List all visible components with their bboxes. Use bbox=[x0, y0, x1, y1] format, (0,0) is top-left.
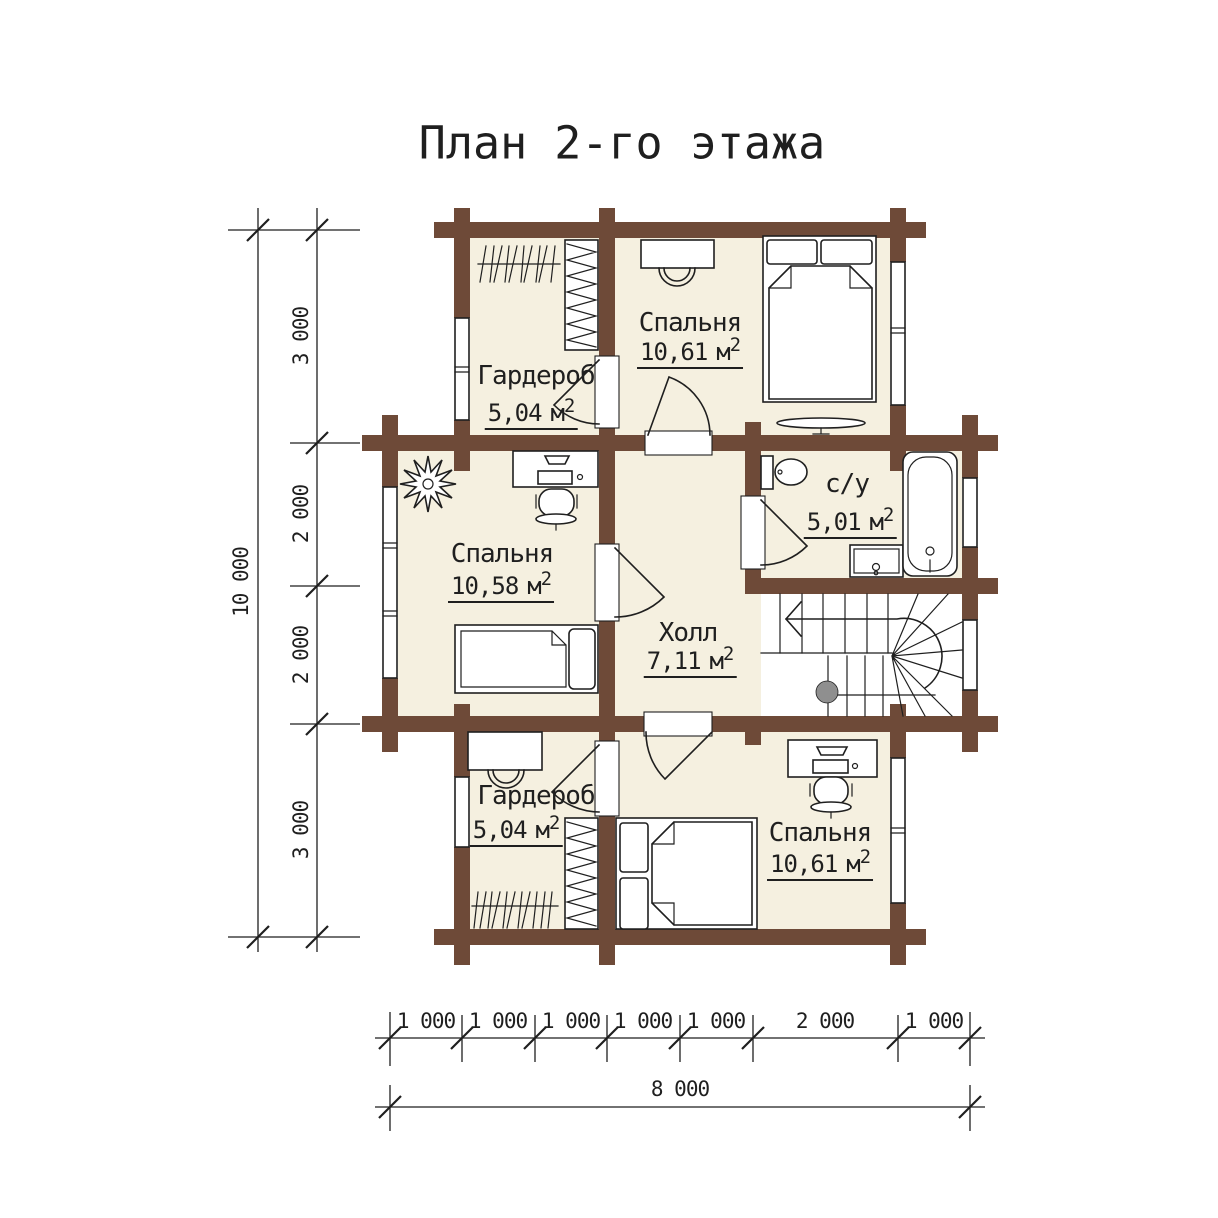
door-jamb bbox=[595, 741, 619, 816]
room-label-wardrobe-top: Гардероб bbox=[477, 361, 594, 391]
door-jamb bbox=[595, 356, 619, 428]
dim-h-segment-4: 1 000 bbox=[614, 1009, 672, 1033]
dim-v-total: 10 000 bbox=[229, 547, 253, 617]
desk-icon bbox=[788, 740, 877, 777]
sink-icon bbox=[850, 545, 903, 577]
dim-v-segment-4: 3 000 bbox=[289, 801, 313, 859]
window bbox=[455, 318, 469, 420]
window bbox=[455, 777, 469, 847]
dim-h-segment-1: 1 000 bbox=[397, 1009, 455, 1033]
door-jamb bbox=[741, 496, 765, 569]
dim-v-segment-2: 2 000 bbox=[289, 485, 313, 543]
shelf-unit-icon bbox=[565, 240, 598, 350]
desk-icon bbox=[641, 240, 714, 268]
door-threshold bbox=[645, 431, 712, 455]
room-area-bathroom: 5,01м2 bbox=[804, 505, 897, 539]
stair-newel-post-icon bbox=[816, 681, 838, 703]
floor-plan-page: План 2-го этажа Спальня 10,61м2 Гардероб… bbox=[0, 0, 1218, 1218]
dim-h-total: 8 000 bbox=[651, 1077, 709, 1101]
single-bed-icon bbox=[455, 625, 598, 693]
room-label-bedroom-top: Спальня bbox=[639, 308, 742, 338]
room-label-bedroom-bottom: Спальня bbox=[769, 818, 872, 848]
double-bed-icon bbox=[763, 236, 876, 402]
bathtub-icon bbox=[903, 452, 957, 576]
room-area-bedroom-left: 10,58м2 bbox=[448, 569, 554, 603]
door-threshold bbox=[644, 712, 712, 736]
room-area-bedroom-bottom: 10,61м2 bbox=[767, 847, 873, 881]
room-label-bathroom: с/у bbox=[825, 469, 869, 499]
room-area-hall: 7,11м2 bbox=[644, 644, 737, 678]
room-area-bedroom-top: 10,61м2 bbox=[637, 335, 743, 369]
drawing-title: План 2-го этажа bbox=[419, 117, 825, 170]
window bbox=[383, 487, 397, 678]
dim-v-segment-1: 3 000 bbox=[289, 307, 313, 365]
room-area-wardrobe-top: 5,04м2 bbox=[485, 396, 578, 430]
door-jamb bbox=[595, 544, 619, 621]
desk-icon bbox=[513, 451, 598, 487]
shelf-unit-icon bbox=[565, 818, 598, 929]
window bbox=[963, 478, 977, 547]
dim-h-segment-2: 1 000 bbox=[469, 1009, 527, 1033]
dim-h-segment-7: 1 000 bbox=[905, 1009, 963, 1033]
window bbox=[891, 262, 905, 405]
dim-h-segment-3: 1 000 bbox=[542, 1009, 600, 1033]
dim-h-segment-6: 2 000 bbox=[796, 1009, 854, 1033]
dim-h-segment-5: 1 000 bbox=[687, 1009, 745, 1033]
room-area-wardrobe-bottom: 5,04м2 bbox=[470, 813, 563, 847]
desk-icon bbox=[468, 732, 542, 770]
room-label-bedroom-left: Спальня bbox=[451, 539, 554, 569]
room-label-wardrobe-bottom: Гардероб bbox=[477, 781, 594, 811]
window bbox=[963, 620, 977, 690]
floor-plan-drawing bbox=[0, 0, 1218, 1218]
dim-v-segment-3: 2 000 bbox=[289, 626, 313, 684]
double-bed-icon bbox=[616, 818, 757, 929]
window bbox=[891, 758, 905, 903]
